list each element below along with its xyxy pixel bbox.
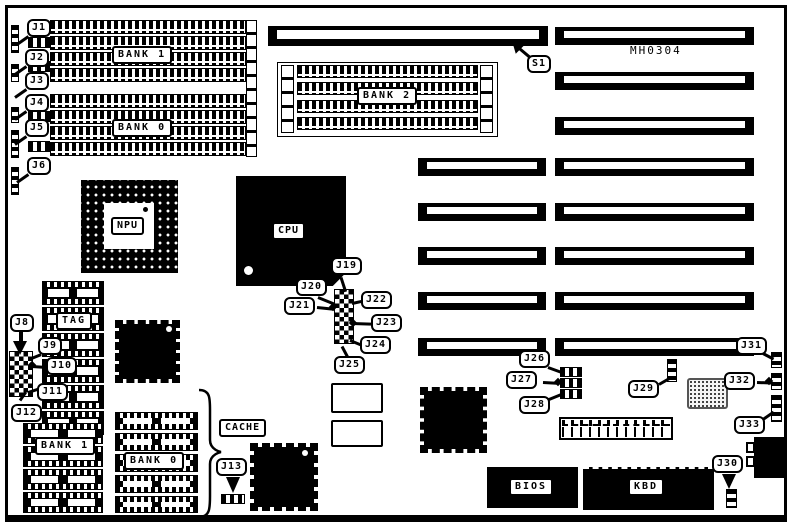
header-block	[28, 141, 50, 152]
jumper-j27-pins	[560, 378, 582, 388]
jumper-label-j4: J4	[25, 94, 49, 112]
simm-socket	[297, 117, 478, 130]
switch-label-s1: S1	[527, 55, 551, 73]
jumper-label-j19: J19	[331, 257, 362, 275]
bank1-bottom-label: BANK 1	[35, 437, 95, 455]
jumper-label-j32: J32	[724, 372, 755, 390]
simm-socket	[50, 142, 246, 156]
motherboard-diagram: BANK 1 BANK 0 J1 J2 J3 J4 J5 J6 S1 BANK …	[0, 0, 791, 527]
kbd-label: KBD	[628, 478, 664, 496]
bank2-left-latch-column	[281, 65, 294, 133]
dram-chip	[23, 492, 103, 513]
pin1-marker	[143, 207, 148, 212]
cache-brace	[196, 388, 224, 519]
jumper-label-j27: J27	[506, 371, 537, 389]
jumper-j30-pins	[726, 489, 737, 508]
jumper-label-j11: J11	[37, 383, 68, 401]
arrowhead	[722, 474, 736, 489]
jumper-block-j19-j25	[334, 289, 354, 344]
jumper-label-j20: J20	[296, 278, 327, 296]
tag-sram-chip	[42, 281, 104, 305]
jumper-label-j33: J33	[734, 416, 765, 434]
jumper-label-j28: J28	[519, 396, 550, 414]
tag-label: TAG	[56, 312, 92, 330]
isa-slot	[555, 338, 754, 356]
isa-slot-extension	[418, 247, 546, 265]
isa-slot	[555, 27, 754, 45]
chipset-chip	[420, 387, 487, 453]
jumper-j13-pins	[221, 494, 245, 504]
arrowhead	[13, 341, 27, 355]
keyboard-din-connector	[754, 437, 787, 478]
jumper-j1-pins	[11, 25, 19, 53]
connector-tab	[746, 456, 755, 467]
jumper-j28-pins	[560, 389, 582, 399]
bank1-top-label: BANK 1	[112, 46, 172, 64]
jumper-label-j31: J31	[736, 337, 767, 355]
pin1-marker	[244, 266, 253, 275]
isa-slot-extension	[418, 158, 546, 176]
jumper-label-j29: J29	[628, 380, 659, 398]
oscillator	[331, 383, 383, 413]
isa-slot	[555, 292, 754, 310]
jumper-label-j24: J24	[360, 336, 391, 354]
pin1-marker	[166, 326, 172, 332]
jumper-label-j13: J13	[216, 458, 247, 476]
bios-label: BIOS	[509, 478, 553, 496]
bank0-bottom-label: BANK 0	[124, 452, 184, 470]
bank2-label: BANK 2	[357, 87, 417, 105]
jumper-label-j21: J21	[284, 297, 315, 315]
isa-slot	[555, 72, 754, 90]
dram-chip	[115, 433, 198, 451]
jumper-label-j1: J1	[27, 19, 51, 37]
jumper-j26-pins	[560, 367, 582, 377]
jumper-label-j10: J10	[46, 357, 77, 375]
simm-socket	[50, 20, 246, 34]
dram-chip	[115, 475, 198, 493]
dip-switch-pins	[562, 420, 670, 426]
isa-slot	[555, 158, 754, 176]
dram-chip	[115, 412, 198, 430]
cache-label: CACHE	[219, 419, 266, 437]
bank2-right-latch-column	[480, 65, 493, 133]
oscillator	[331, 420, 383, 447]
jumper-j33-pins	[771, 395, 782, 422]
part-number: MH0304	[630, 44, 682, 57]
jumper-label-j12: J12	[11, 404, 42, 422]
dip-switch-cells	[562, 427, 670, 437]
jumper-label-j26: J26	[519, 350, 550, 368]
delay-line-chip	[687, 378, 728, 409]
jumper-label-j6: J6	[27, 157, 51, 175]
isa-slot-extension	[418, 292, 546, 310]
simm-socket	[50, 94, 246, 108]
isa-slot	[555, 117, 754, 135]
jumper-label-j9: J9	[38, 337, 62, 355]
simm-socket	[297, 65, 478, 78]
cpu-label: CPU	[272, 222, 305, 240]
dip-switch-block	[559, 417, 673, 440]
jumper-label-j8: J8	[10, 314, 34, 332]
jumper-label-j30: J30	[712, 455, 743, 473]
jumper-label-j2: J2	[25, 49, 49, 67]
jumper-label-j3: J3	[25, 72, 49, 90]
arrowhead	[226, 477, 240, 493]
jumper-label-j23: J23	[371, 314, 402, 332]
jumper-label-j25: J25	[334, 356, 365, 374]
jumper-label-j22: J22	[361, 291, 392, 309]
connector-tab	[746, 442, 755, 453]
dram-chip	[115, 496, 198, 513]
dram-chip	[23, 469, 103, 490]
jumper-label-j5: J5	[25, 119, 49, 137]
isa-slot-extension	[418, 203, 546, 221]
isa-slot	[555, 247, 754, 265]
simm-end-connector-column	[246, 20, 257, 157]
bank0-top-label: BANK 0	[112, 119, 172, 137]
isa-slot	[555, 203, 754, 221]
npu-label: NPU	[111, 217, 144, 235]
header-block	[28, 37, 50, 48]
pin1-marker	[302, 450, 308, 456]
simm-socket	[50, 68, 246, 82]
